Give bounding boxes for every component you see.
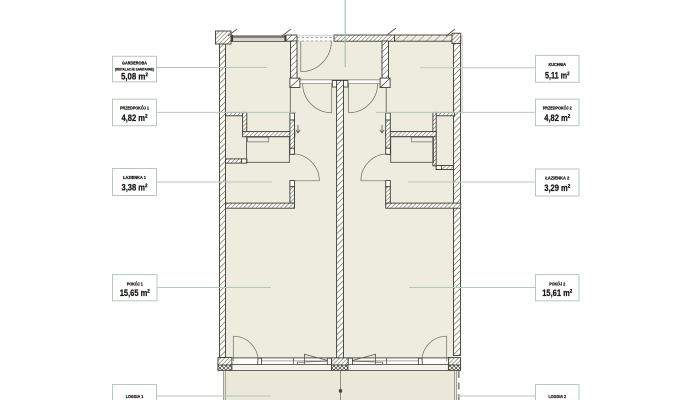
svg-text:LOGGIA 2: LOGGIA 2 [549, 394, 567, 399]
svg-text:3,29 m²: 3,29 m² [544, 183, 570, 193]
svg-text:5,11 m²: 5,11 m² [545, 71, 570, 81]
svg-text:LOGGIA 1: LOGGIA 1 [126, 394, 144, 399]
svg-text:GARDEROBA: GARDEROBA [122, 60, 148, 65]
svg-text:5,08 m²: 5,08 m² [121, 71, 148, 81]
svg-text:15,61 m²: 15,61 m² [542, 288, 572, 298]
svg-text:ŁAZIENKA 2: ŁAZIENKA 2 [545, 176, 569, 181]
svg-text:KUCHNIA: KUCHNIA [549, 62, 567, 67]
svg-text:ŁAZIENKA 1: ŁAZIENKA 1 [123, 175, 146, 180]
svg-text:PRZEDPOKÓJ 2: PRZEDPOKÓJ 2 [543, 104, 572, 111]
svg-text:PRZEDPOKÓJ 1: PRZEDPOKÓJ 1 [120, 104, 149, 111]
svg-text:4,82 m²: 4,82 m² [122, 113, 148, 123]
svg-text:3,38 m²: 3,38 m² [122, 182, 148, 192]
svg-text:4,82 m²: 4,82 m² [544, 113, 570, 123]
svg-text:POKÓJ 2: POKÓJ 2 [549, 279, 565, 286]
svg-text:POKÓJ 1: POKÓJ 1 [127, 279, 143, 286]
svg-text:15,65 m²: 15,65 m² [120, 288, 150, 298]
